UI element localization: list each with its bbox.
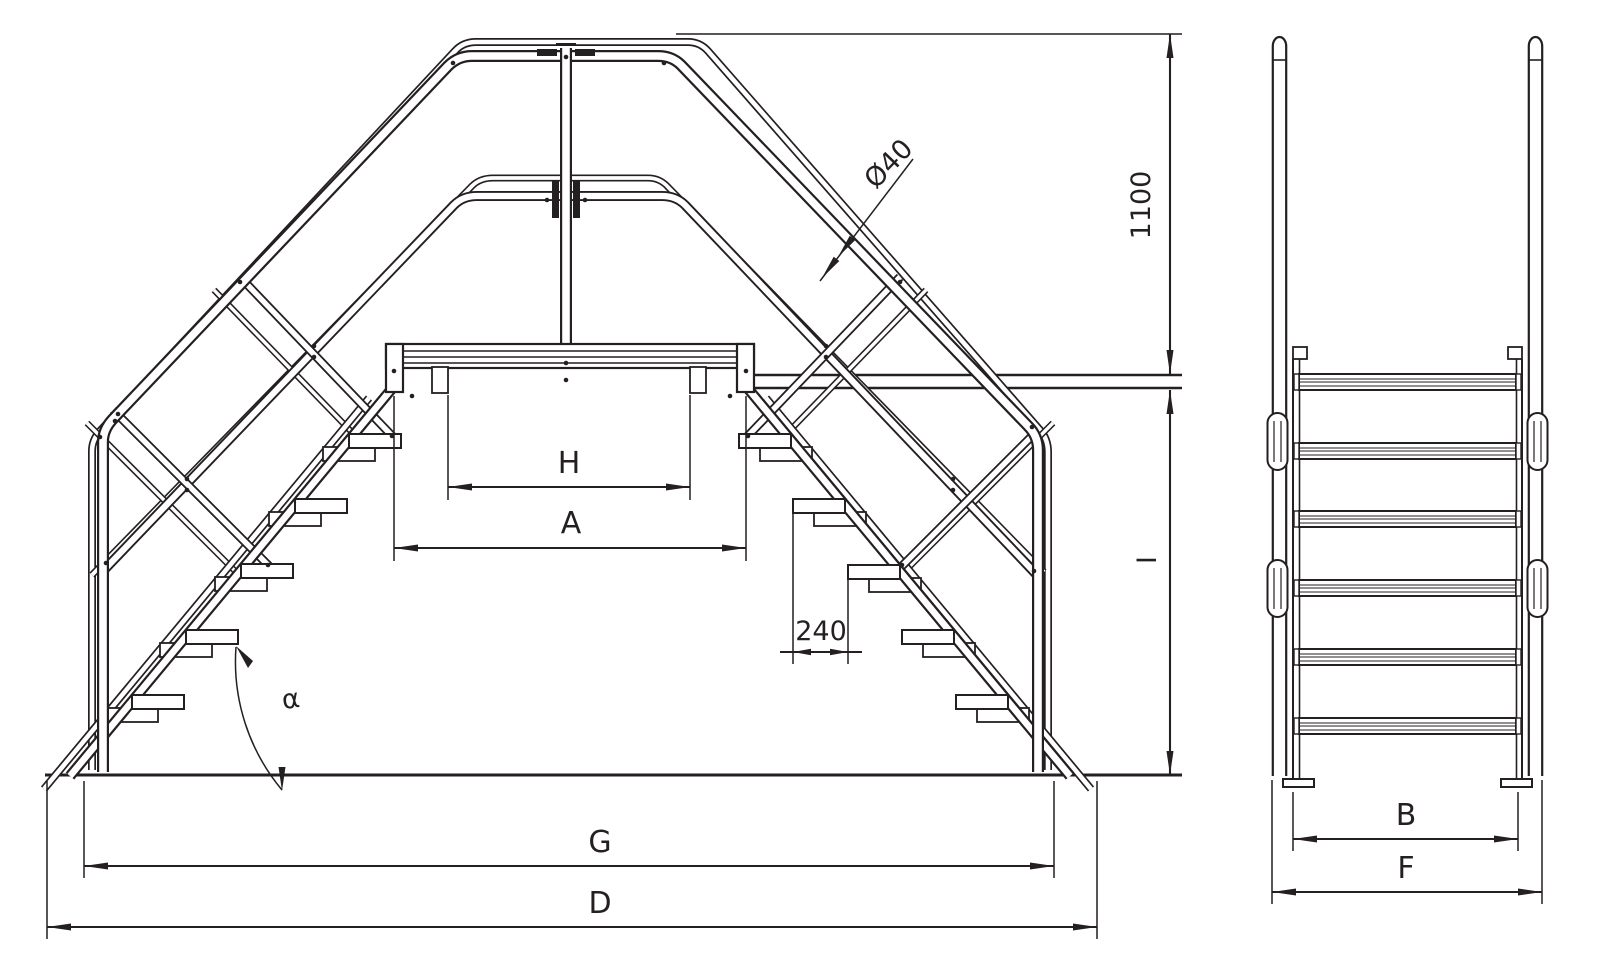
- dim-base-span-overall: D: [47, 781, 1097, 939]
- dim-platform-height: I: [1132, 390, 1174, 775]
- crossover-stair-drawing: Ø40 1100 I H A 240: [0, 0, 1600, 960]
- dim-tread-width: B: [1293, 792, 1518, 851]
- far-treads: [106, 447, 1029, 722]
- dim-step-pitch: 240: [780, 513, 862, 664]
- dim-label-diameter: Ø40: [858, 133, 919, 195]
- dim-label-base-span-inner: G: [588, 825, 611, 860]
- side-view: [1268, 37, 1548, 787]
- dim-label-handrail-height: 1100: [1126, 171, 1157, 240]
- dim-clear-width: H: [448, 395, 690, 500]
- upper-floor-lines: [754, 375, 1182, 388]
- dim-base-span-inner: G: [84, 781, 1054, 878]
- dim-label-step-pitch: 240: [795, 616, 847, 647]
- dim-label-overall-width: F: [1397, 851, 1414, 886]
- dim-label-platform-length: A: [561, 506, 582, 541]
- dim-label-stair-angle: α: [280, 683, 302, 716]
- dim-label-clear-width: H: [558, 446, 581, 481]
- dim-label-base-span-overall: D: [588, 886, 611, 921]
- side-treads: [1294, 374, 1521, 734]
- technical-drawing-canvas: Ø40 1100 I H A 240: [0, 0, 1600, 960]
- dim-label-tread-width: B: [1396, 798, 1417, 833]
- dim-stair-angle: α: [235, 646, 301, 791]
- platform: [386, 344, 754, 393]
- dim-label-platform-height: I: [1132, 556, 1163, 564]
